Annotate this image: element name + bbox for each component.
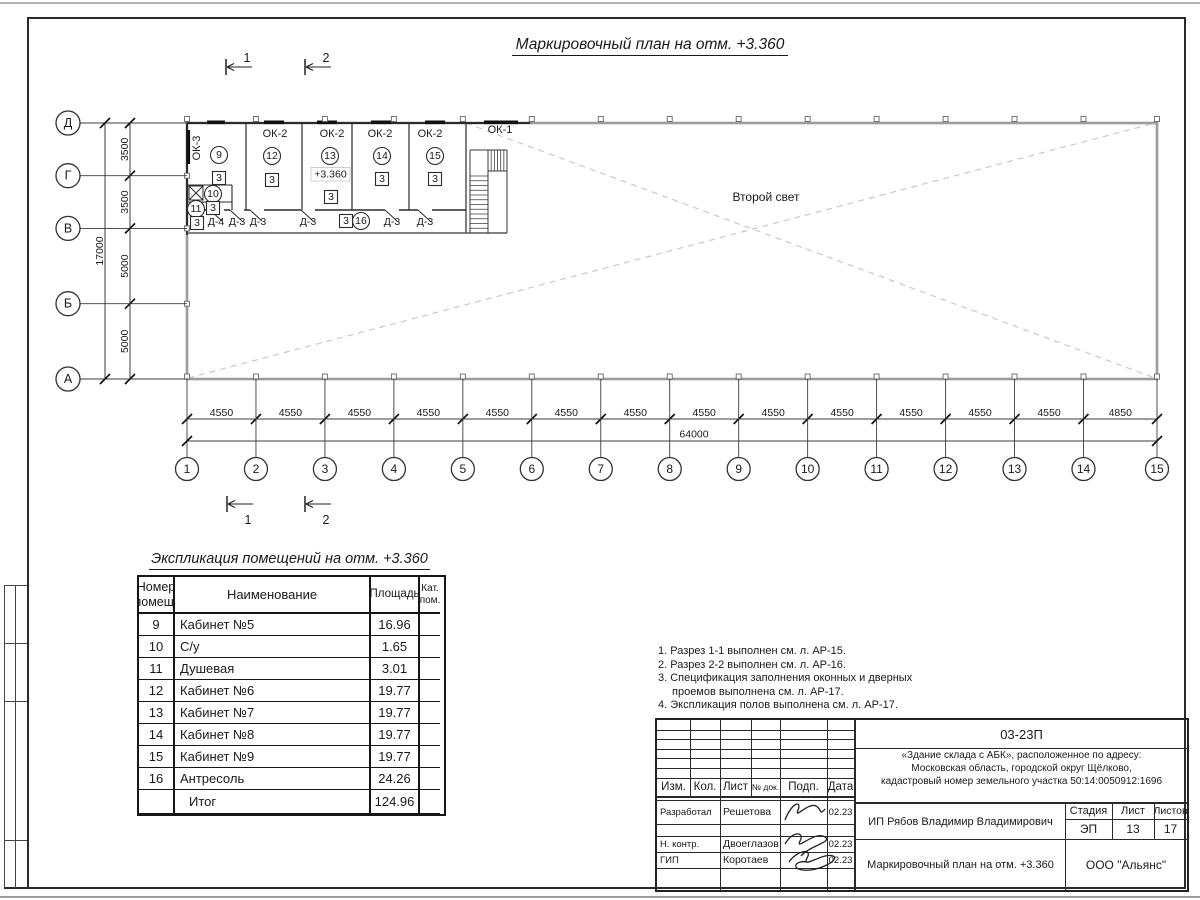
door-mark-label: Д-3 [300,216,317,228]
axis-bubble-label: Б [64,297,72,311]
table-cell: 10 [139,636,175,658]
table-cell [420,658,440,680]
column-marker [253,117,258,122]
dim-label: 4550 [417,407,441,419]
tb-col-data: Дата [827,778,854,796]
tb-project-line2: Московская область, городской округ Щёлк… [856,762,1187,775]
dim-label: 4550 [486,407,510,419]
axis-bubble-label: Г [65,169,72,183]
door-mark-label: Д-3 [250,216,267,228]
dim-label: 4550 [899,407,923,419]
axis-bubble-label: 3 [322,462,329,476]
second-light-label: Второй свет [732,190,800,204]
column-marker [185,374,190,379]
window-mark-label: ОК-1 [488,124,513,136]
axis-bubble-label: В [64,221,72,235]
axis-bubble-label: 8 [666,462,673,476]
tb-role-developer: Разработал [660,800,720,824]
room-number-label: 9 [216,149,222,161]
dim-label: 4850 [1109,407,1133,419]
room-number-label: 12 [266,150,278,162]
column-marker [874,374,879,379]
section-mark-label: 2 [323,51,330,65]
note-line: проемов выполнена см. л. АР-17. [658,686,912,700]
stamp-div-3 [4,701,27,702]
column-marker [253,374,258,379]
note-line: 1. Разрез 1-1 выполнен см. л. АР-15. [658,645,912,659]
room-number-label: 15 [429,150,441,162]
axis-bubble-label: 7 [597,462,604,476]
tb-date-developer: 02.23 [827,800,854,824]
dim-label: 4550 [761,407,785,419]
door-mark-label: Д-4 [208,216,225,228]
table-cell: 16 [139,768,175,790]
dim-label: 5000 [119,330,131,354]
tb-stage-label: Стадия [1065,802,1112,819]
table-cell [420,746,440,768]
dim-total-label: 17000 [94,236,106,265]
table-cell [420,724,440,746]
notes-list: 1. Разрез 1-1 выполнен см. л. АР-15.2. Р… [658,645,912,713]
table-cell: 19.77 [371,680,420,702]
dim-label: 4550 [210,407,234,419]
table-cell [420,768,440,790]
dim-label: 4550 [348,407,372,419]
table-cell [420,790,440,814]
column-marker [391,374,396,379]
col-header-category: Кат. пом. [420,577,440,614]
stamp-col-outer [4,585,5,888]
axis-bubble-label: 6 [528,462,535,476]
tb-doc-number: 03-23П [856,720,1187,748]
column-marker [598,374,603,379]
column-marker [805,117,810,122]
stamp-col-mid [15,585,16,888]
signature-developer [782,798,827,826]
room-number-label: 14 [376,150,388,162]
table-cell: 3.01 [371,658,420,680]
column-marker [322,117,327,122]
column-marker [1081,117,1086,122]
note-line: 2. Разрез 2-2 выполнен см. л. АР-16. [658,659,912,673]
floor-type-label: 3 [343,215,349,227]
column-marker [1081,374,1086,379]
table-cell: 19.77 [371,746,420,768]
table-cell [420,614,440,636]
table-cell: 124.96 [371,790,420,814]
tb-company: ООО "Альянс" [1065,839,1187,890]
floor-type-label: 3 [379,173,385,185]
signature-ncontrol-gip [779,828,855,876]
tb-project-line3: кадастровый номер земельного участка 50:… [856,775,1187,788]
floor-plan: 1234567891011121314154550455045504550455… [0,0,1200,560]
tb-role-gip: ГИП [660,852,720,868]
col-header-area: Площадь [371,577,420,614]
room-name-cell: Кабинет №5 [175,614,371,636]
table-cell: 19.77 [371,702,420,724]
column-marker [598,117,603,122]
table-cell: 16.96 [371,614,420,636]
room-name-cell: Антресоль [175,768,371,790]
floor-type-label: 3 [328,191,334,203]
explication-title-text: Экспликация помещений на отм. +3.360 [149,551,430,570]
door-mark-label: Д-3 [229,216,246,228]
room-number-label: 11 [191,203,202,215]
stamp-div-1 [4,585,27,586]
table-cell: 9 [139,614,175,636]
axis-bubble-label: Д [64,116,73,130]
column-marker [529,117,534,122]
tb-col-podp: Подп. [780,778,827,796]
column-marker [529,374,534,379]
tb-name-gip: Коротаев [723,852,780,868]
stamp-div-2 [4,643,27,644]
column-marker [943,374,948,379]
axis-bubble-label: 10 [801,462,815,476]
axis-bubble-label: 13 [1008,462,1022,476]
tb-sheets-value: 17 [1154,819,1187,839]
table-cell: 15 [139,746,175,768]
dim-label: 4550 [624,407,648,419]
sheet-bottom-edge [0,896,1200,898]
col-header-number: Номер помещ. [139,577,175,614]
column-marker [805,374,810,379]
window-mark-label: ОК-2 [320,128,345,140]
dim-label: 4550 [1037,407,1061,419]
table-cell [420,702,440,724]
explication-title: Экспликация помещений на отм. +3.360 [137,551,442,567]
axis-bubble-label: А [64,372,73,386]
axis-bubble-label: 15 [1150,462,1164,476]
title-block: Изм. Кол. Лист № док. Подп. Дата Разрабо… [655,718,1189,892]
table-cell: 11 [139,658,175,680]
stamp-div-4 [4,840,27,841]
tb-name-developer: Решетова [723,800,780,824]
table-cell [420,680,440,702]
tb-col-ndok: № док. [751,778,780,796]
axis-bubble-label: 14 [1077,462,1091,476]
column-marker [667,374,672,379]
axis-bubble-label: 12 [939,462,953,476]
table-cell: 1.65 [371,636,420,658]
room-name-cell: Кабинет №8 [175,724,371,746]
col-header-name: Наименование [175,577,371,614]
window-mark-label: ОК-2 [368,128,393,140]
axis-bubble-label: 5 [460,462,467,476]
column-marker [736,374,741,379]
column-marker [185,117,190,122]
column-marker [460,117,465,122]
axis-bubble-label: 11 [870,462,883,476]
dim-label: 4550 [693,407,717,419]
room-name-cell: Душевая [175,658,371,680]
tb-name-ncontrol: Двоеглазов [723,836,780,852]
room-name-cell: Кабинет №6 [175,680,371,702]
section-mark-label: 2 [323,513,330,527]
room-number-label: 16 [355,215,367,227]
axis-bubble-label: 2 [253,462,260,476]
dim-total-label: 64000 [679,429,708,441]
table-cell [139,790,175,814]
axis-bubble-label: 1 [184,462,191,476]
tb-sheet-value: 13 [1112,819,1154,839]
dim-label: 3500 [119,190,131,214]
tb-sheet-label: Лист [1112,802,1154,819]
dim-label: 3500 [119,138,131,162]
table-cell: 13 [139,702,175,724]
table-cell: 12 [139,680,175,702]
section-mark-label: 1 [244,51,251,65]
room-number-label: 13 [324,150,336,162]
axis-bubble-label: 9 [735,462,742,476]
table-cell: 19.77 [371,724,420,746]
window-mark-label: ОК-2 [418,128,443,140]
room-name-cell: С/у [175,636,371,658]
floor-type-label: 3 [432,173,438,185]
stair-outline [470,150,507,233]
column-marker [874,117,879,122]
column-marker [322,374,327,379]
tb-client: ИП Рябов Владимир Владимирович [856,804,1065,839]
floor-type-label: 3 [269,174,275,186]
dim-label: 5000 [119,254,131,278]
elevation-label: +3.360 [314,168,347,180]
explication-table: Номер помещ. Наименование Площадь Кат. п… [137,575,446,816]
room-name-cell: Итог [175,790,371,814]
floor-type-label: 3 [210,202,216,214]
section-mark-label: 1 [245,513,252,527]
column-marker [943,117,948,122]
column-marker [391,117,396,122]
room-name-cell: Кабинет №7 [175,702,371,724]
room-number-label: 10 [207,188,219,200]
tb-role-ncontrol: Н. контр. [660,836,720,852]
tb-sheet-title: Маркировочный план на отм. +3.360 [856,839,1065,890]
window-mark-label: ОК-3 [191,136,203,161]
tb-project-line1: «Здание склада с АБК», расположенное по … [856,749,1187,762]
tb-stage-value: ЭП [1065,819,1112,839]
table-cell [420,636,440,658]
tb-col-kol: Кол. [690,778,720,796]
door-mark-label: Д-3 [417,216,434,228]
room-name-cell: Кабинет №9 [175,746,371,768]
tb-col-izm: Изм. [657,778,690,796]
dim-label: 4550 [279,407,303,419]
table-cell: 14 [139,724,175,746]
tb-col-list: Лист [720,778,751,796]
column-marker [1012,374,1017,379]
dim-label: 4550 [555,407,579,419]
floor-type-label: 3 [216,172,222,184]
table-cell: 24.26 [371,768,420,790]
column-marker [1155,374,1160,379]
note-line: 3. Спецификация заполнения оконных и две… [658,672,912,686]
column-marker [1155,117,1160,122]
column-marker [667,117,672,122]
column-marker [1012,117,1017,122]
drawing-sheet: Маркировочный план на отм. +3.360 123456… [0,0,1200,900]
floor-type-label: 3 [194,217,200,229]
tb-sheets-label: Листов [1154,802,1187,819]
axis-bubble-label: 4 [391,462,398,476]
window-mark-label: ОК-2 [263,128,288,140]
dim-label: 4550 [968,407,992,419]
column-marker [736,117,741,122]
dim-label: 4550 [830,407,854,419]
note-line: 4. Экспликация полов выполнена см. л. АР… [658,699,912,713]
door-mark-label: Д-3 [384,216,401,228]
column-marker [460,374,465,379]
